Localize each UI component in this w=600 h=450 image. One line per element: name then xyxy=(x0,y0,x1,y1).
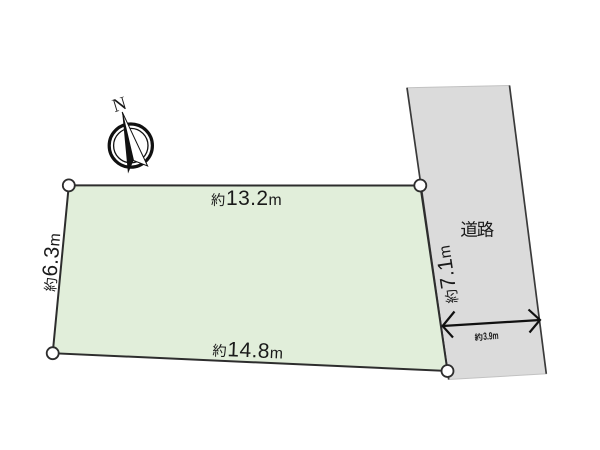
svg-text:3.9m: 3.9m xyxy=(483,330,499,343)
svg-text:6.3m: 6.3m xyxy=(39,232,66,278)
svg-text:N: N xyxy=(110,93,130,117)
